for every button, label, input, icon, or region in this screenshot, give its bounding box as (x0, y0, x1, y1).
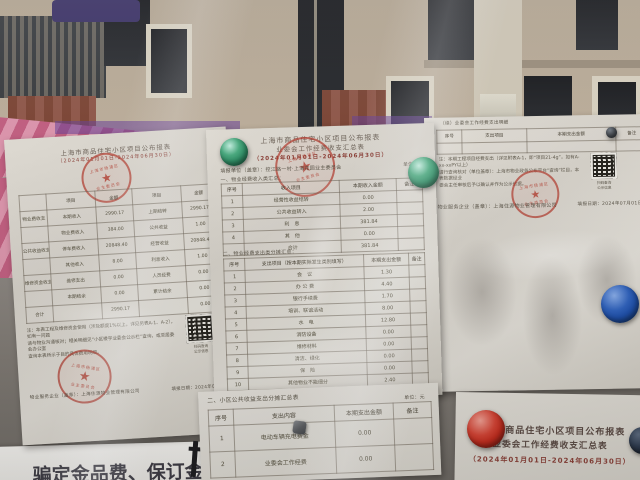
table-cell: 4 (223, 231, 244, 244)
table-cell: 备注 (408, 253, 424, 265)
qr-code (591, 153, 617, 179)
table-cell (409, 265, 425, 277)
table-cell: 0.00 (336, 445, 396, 473)
table-cell (394, 418, 433, 445)
bottom-doc-table: 序号支出内容本期支出金额备注1电动车辆充电费金0.002业委会工作经费0.00 (208, 401, 434, 479)
table-cell (410, 289, 426, 301)
table-cell: 序号 (221, 183, 242, 196)
table-cell (410, 301, 426, 313)
qr-caption: 公示信息 (589, 186, 619, 192)
table-cell: 支出项目 (462, 129, 527, 143)
table-cell: 备注 (393, 402, 432, 419)
right-doc-note: 注：本期工程项目经费支出（详见附表A-1，即“项目21-4g”，如有A-xx-x… (439, 155, 584, 190)
bottom-document: 二、小区公共收益支出分摊汇总表 单位：元 序号支出内容本期支出金额备注1电动车辆… (198, 383, 441, 480)
table-cell: 1 (222, 195, 243, 208)
purple-reflection-blob (52, 0, 140, 22)
table-cell: 0.00 (335, 419, 395, 447)
table-cell (25, 290, 53, 308)
table-cell: 381.84 (341, 239, 398, 253)
table-cell (21, 226, 49, 244)
lower-doc-period: （2024年01月01日-2024年06月30日） (455, 454, 640, 467)
magnet-green (220, 138, 248, 166)
table-cell: 序号 (224, 258, 245, 271)
table-cell (19, 194, 47, 212)
table-cell (396, 190, 422, 203)
table-cell: 1 (209, 425, 235, 452)
table-cell (462, 142, 527, 154)
photo-scene: 骗定金品费、保订金、体 上海市商品住宅小区项目公布报表 （2024年01月01日… (0, 0, 640, 480)
table-cell (409, 277, 425, 289)
table-cell: 合计 (26, 306, 54, 324)
table-cell (398, 226, 424, 239)
table-cell (397, 202, 423, 215)
magnet-square (292, 420, 307, 435)
right-doc-date: 填报日期：2024年07月01日 (577, 200, 640, 207)
table-cell: 业委会工作经费 (235, 447, 337, 477)
right-doc-continuation-label: （续）业委会工作经费支出明细 (440, 120, 509, 127)
window-reflection (151, 29, 187, 93)
table-cell (616, 140, 640, 152)
table-cell: 6 (226, 330, 247, 343)
table-cell (398, 238, 424, 251)
table-cell (410, 313, 426, 325)
expense-table: 序号支出项目（按本期实际发生类别填写）本期支出金额备注1会 议1.302办 公 … (223, 252, 429, 391)
table-cell: 3 (225, 294, 246, 307)
pin-gray (606, 127, 617, 138)
table-cell (53, 303, 103, 322)
table-cell (527, 140, 616, 153)
table-cell: 维修资金收支 (24, 274, 52, 292)
window-reflection (428, 0, 474, 62)
left-doc-note: 注：本表工程及维修资金使用（涉及额度1%以上，详见另表A-1、A-2），如有一问… (27, 320, 179, 361)
shadow-reflection-blob (446, 236, 518, 347)
stamp-ring-text: 业主委员会 (70, 381, 96, 391)
table-cell: 7 (226, 342, 247, 355)
window-reflection (576, 0, 618, 50)
table-cell: 序号 (208, 409, 234, 426)
ledge-reflection (424, 60, 640, 68)
magnet-red (467, 410, 505, 448)
table-cell: 2 (224, 282, 245, 295)
table-cell (23, 258, 51, 276)
table-cell (139, 298, 189, 317)
table-cell: 8 (227, 354, 248, 367)
left-doc-table: 项目金额项目金额物业费收支本期收入2990.17上期结转2990.17物业费收入… (18, 183, 224, 324)
right-document: （续）业委会工作经费支出明细 序号支出项目本期支出金额备注 注：本期工程项目经费… (424, 114, 640, 392)
table-cell: 5 (225, 318, 246, 331)
table-cell (411, 349, 427, 361)
table-cell: 2 (210, 451, 236, 478)
table-cell (437, 143, 462, 154)
table-cell: 1 (224, 270, 245, 283)
table-cell: 4 (225, 306, 246, 319)
bottom-doc-unit-label: 单位：元 (404, 393, 425, 401)
table-cell: 2990.17 (102, 301, 140, 319)
balcony-railing-reflection (0, 16, 106, 98)
table-cell: 10 (227, 378, 248, 391)
bottom-doc-section: 二、小区公共收益支出分摊汇总表 (207, 392, 299, 405)
table-cell (395, 444, 434, 471)
table-cell: 电动车辆充电费金 (234, 421, 336, 451)
table-cell: 序号 (437, 130, 462, 143)
table-cell: 9 (227, 366, 248, 379)
middle-document: 上海市商品住宅小区项目公布报表 业委会工作经费收支汇总表 （2024年01月01… (206, 123, 442, 402)
table-cell (412, 361, 428, 373)
income-table: 序号收入项目本期收入金额备注1经营性收益结转0.002公共收益转入2.003利 … (221, 177, 425, 256)
table-cell: 2 (222, 207, 243, 220)
table-cell (397, 214, 423, 227)
table-cell (411, 337, 427, 349)
window-mullion-reflection (314, 0, 317, 142)
table-cell: 备注 (616, 127, 640, 141)
table-cell: 公共收益收支 (22, 242, 50, 260)
magnet-blue (601, 285, 639, 323)
warning-sign-text: 骗定金品费、保订金、体 (32, 455, 209, 480)
magnet-green (408, 157, 439, 188)
qr-code (185, 314, 215, 344)
table-cell (411, 325, 427, 337)
table-cell: 物业费收支 (20, 210, 48, 228)
table-cell: 3 (222, 219, 243, 232)
warning-sign: 骗定金品费、保订金、体 (0, 441, 209, 480)
shadow-reflection-blob (521, 255, 583, 376)
